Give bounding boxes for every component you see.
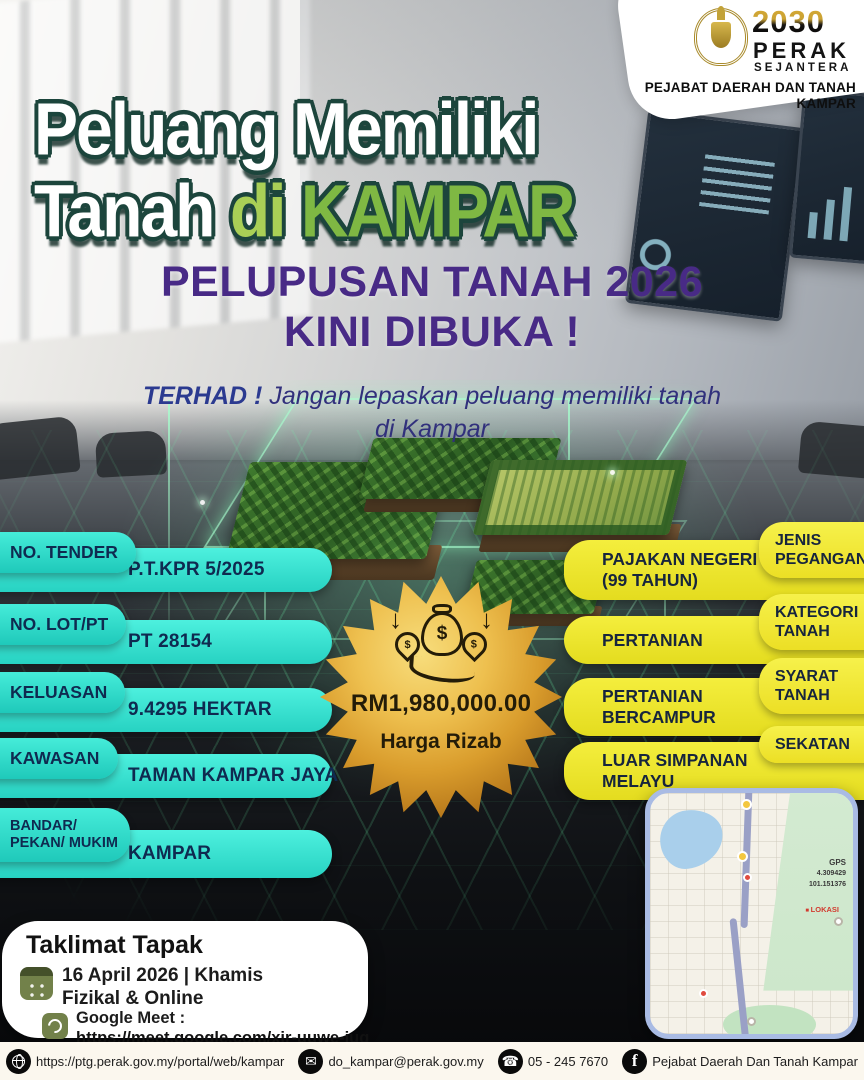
logo-2030: 2030 — [752, 4, 825, 40]
detail-label: BANDAR/ PEKAN/ MUKIM — [0, 808, 130, 862]
money-bags-in-hand-icon: ↓↓ $ $ $ — [371, 602, 511, 688]
briefing-title: Taklimat Tapak — [26, 931, 203, 960]
detail-label: NO. LOT/PT — [0, 604, 126, 645]
headline: PELUPUSAN TANAH 2026 KINI DIBUKA ! — [120, 258, 744, 358]
map-lake — [656, 806, 726, 872]
sparkle — [610, 470, 615, 475]
map-location-label: LOKASI — [805, 905, 839, 914]
contact-footer: https://ptg.perak.gov.my/portal/web/kamp… — [0, 1042, 864, 1080]
land-plot-right — [482, 460, 678, 552]
facebook-link[interactable]: Pejabat Daerah Dan Tanah Kampar — [652, 1054, 858, 1069]
subheadline: TERHAD ! Jangan lepaskan peluang memilik… — [60, 380, 804, 445]
detail-label: KELUASAN — [0, 672, 125, 713]
title-kampar: KAMPAR — [301, 169, 574, 252]
detail-label: KAWASAN — [0, 738, 118, 779]
map-green-area — [758, 793, 853, 991]
detail-label: SYARAT TANAH — [759, 658, 864, 714]
poster-title-line2: Tanah di KAMPAR — [34, 168, 574, 253]
subheadline-terhad: TERHAD ! — [143, 382, 262, 410]
headline-line1: PELUPUSAN TANAH 2026 — [120, 258, 744, 308]
map-gps-coordinates: GPS 4.309429 101.151376 — [809, 857, 846, 890]
subheadline-line1: TERHAD ! Jangan lepaskan peluang memilik… — [60, 380, 804, 413]
meet-label: Google Meet : — [76, 1009, 185, 1028]
gps-longitude: 101.151376 — [809, 880, 846, 891]
website-link[interactable]: https://ptg.perak.gov.my/portal/web/kamp… — [36, 1054, 284, 1069]
title-tanah: Tanah — [34, 169, 213, 252]
map-marker-red — [743, 873, 752, 882]
subheadline-rest: Jangan lepaskan peluang memiliki tanah — [269, 382, 721, 410]
office-name: PEJABAT DAERAH DAN TANAH KAMPAR — [604, 80, 856, 112]
detail-label: SEKATAN — [759, 726, 864, 763]
poster-title-line1: Peluang Memiliki — [34, 86, 537, 171]
poster: 2030 PERAK SEJANTERA PEJABAT DAERAH DAN … — [0, 0, 864, 1080]
title-di: di — [230, 169, 285, 252]
gps-label: GPS — [809, 857, 846, 869]
map-green-area-bottom — [723, 1005, 816, 1039]
detail-label: NO. TENDER — [0, 532, 136, 573]
map-marker-red — [699, 989, 708, 998]
briefing-mode: Fizikal & Online — [62, 988, 203, 1010]
phone-icon: ☎ — [498, 1049, 523, 1074]
logo-sejantera: SEJANTERA — [754, 62, 852, 74]
phone-link[interactable]: 05 - 245 7670 — [528, 1054, 608, 1069]
detail-label: JENIS PEGANGAN — [759, 522, 864, 578]
headline-line2: KINI DIBUKA ! — [120, 308, 744, 358]
calendar-icon — [20, 967, 53, 1000]
email-link[interactable]: do_kampar@perak.gov.my — [328, 1054, 483, 1069]
location-map: GPS 4.309429 101.151376 LOKASI — [645, 788, 858, 1039]
facebook-icon: f — [622, 1049, 647, 1074]
logo-perak: PERAK — [753, 38, 850, 64]
price-amount: RM1,980,000.00 — [351, 690, 531, 718]
subheadline-line2: di Kampar — [60, 413, 804, 446]
detail-label: KATEGORI TANAH — [759, 594, 864, 650]
google-meet-icon — [42, 1013, 68, 1039]
sparkle — [200, 500, 205, 505]
gps-latitude: 4.309429 — [809, 869, 846, 880]
briefing-card: Taklimat Tapak 16 April 2026 | Khamis Fi… — [2, 921, 368, 1038]
perak-crest-icon — [690, 4, 752, 70]
price-caption: Harga Rizab — [380, 730, 501, 754]
globe-icon — [6, 1049, 31, 1074]
briefing-date: 16 April 2026 | Khamis — [62, 965, 263, 987]
email-icon: ✉ — [298, 1049, 323, 1074]
map-marker-white — [834, 917, 843, 926]
